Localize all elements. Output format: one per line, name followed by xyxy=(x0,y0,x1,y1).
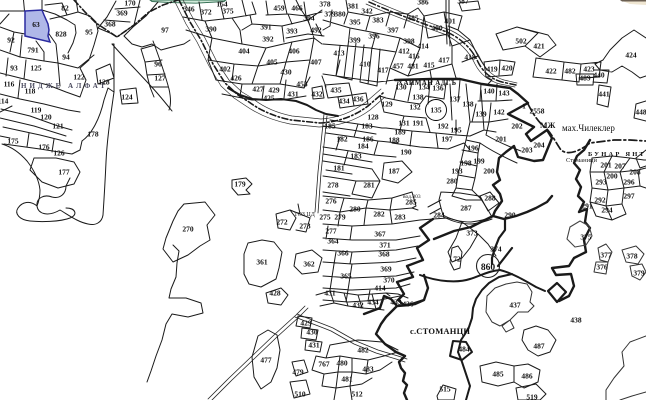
svg-text:282: 282 xyxy=(373,210,385,219)
svg-text:414: 414 xyxy=(374,284,386,293)
svg-text:432: 432 xyxy=(352,301,364,310)
svg-text:187: 187 xyxy=(388,167,400,176)
svg-text:391: 391 xyxy=(260,23,272,32)
svg-text:385: 385 xyxy=(407,14,419,23)
svg-text:200: 200 xyxy=(483,167,495,176)
svg-text:346: 346 xyxy=(183,5,195,14)
svg-text:72: 72 xyxy=(453,255,461,264)
svg-text:482: 482 xyxy=(564,67,576,76)
svg-text:397: 397 xyxy=(387,26,399,35)
svg-text:402: 402 xyxy=(219,65,231,74)
svg-text:480: 480 xyxy=(336,359,348,368)
svg-text:386: 386 xyxy=(417,0,429,7)
svg-text:183: 183 xyxy=(350,152,362,161)
svg-text:1: 1 xyxy=(522,102,526,111)
svg-text:201: 201 xyxy=(600,161,612,170)
svg-text:97: 97 xyxy=(161,26,169,35)
svg-text:143: 143 xyxy=(498,89,510,98)
svg-text:126: 126 xyxy=(53,149,65,158)
svg-text:482: 482 xyxy=(357,346,369,355)
svg-text:118: 118 xyxy=(25,87,36,96)
svg-text:292: 292 xyxy=(594,196,606,205)
svg-text:200: 200 xyxy=(606,172,618,181)
svg-text:417: 417 xyxy=(377,66,389,75)
svg-text:364: 364 xyxy=(327,237,339,246)
svg-text:393: 393 xyxy=(286,27,298,36)
svg-text:188: 188 xyxy=(388,136,400,145)
svg-text:436: 436 xyxy=(402,300,414,309)
svg-text:492: 492 xyxy=(310,26,322,35)
svg-text:466: 466 xyxy=(291,4,303,13)
svg-text:181: 181 xyxy=(333,164,345,173)
svg-text:433: 433 xyxy=(390,298,402,307)
svg-text:422: 422 xyxy=(545,67,557,76)
svg-text:132: 132 xyxy=(409,103,421,112)
svg-text:404: 404 xyxy=(238,47,250,56)
svg-text:416: 416 xyxy=(408,52,420,61)
svg-text:мах.Чилеклер: мах.Чилеклер xyxy=(562,123,615,133)
svg-text:441: 441 xyxy=(598,90,610,99)
svg-text:374: 374 xyxy=(490,245,502,254)
svg-text:63: 63 xyxy=(32,20,40,29)
svg-text:270: 270 xyxy=(182,225,194,234)
svg-text:401: 401 xyxy=(444,17,456,26)
svg-text:430: 430 xyxy=(306,328,318,337)
svg-text:177: 177 xyxy=(58,168,70,177)
svg-text:515: 515 xyxy=(439,385,451,394)
svg-text:435: 435 xyxy=(330,86,342,95)
svg-text:512: 512 xyxy=(351,390,363,399)
svg-text:457: 457 xyxy=(392,62,404,71)
svg-text:484: 484 xyxy=(458,345,470,354)
svg-text:440: 440 xyxy=(593,71,605,80)
svg-text:128: 128 xyxy=(98,78,110,87)
svg-text:276: 276 xyxy=(325,197,337,206)
svg-text:204: 204 xyxy=(533,141,545,150)
svg-text:272: 272 xyxy=(276,218,288,227)
svg-text:130: 130 xyxy=(395,83,407,92)
svg-text:437: 437 xyxy=(509,301,521,310)
svg-text:195: 195 xyxy=(450,126,462,135)
svg-text:372: 372 xyxy=(200,8,212,17)
svg-text:92: 92 xyxy=(7,36,15,45)
svg-text:273: 273 xyxy=(299,222,311,231)
svg-text:154: 154 xyxy=(216,0,228,9)
svg-text:176: 176 xyxy=(38,143,50,152)
svg-text:400: 400 xyxy=(431,24,443,33)
svg-text:373: 373 xyxy=(466,229,478,238)
svg-text:179: 179 xyxy=(234,180,246,189)
svg-text:170: 170 xyxy=(124,0,136,8)
svg-text:430: 430 xyxy=(280,68,292,77)
svg-text:Стоманици: Стоманици xyxy=(566,157,598,164)
svg-text:127: 127 xyxy=(154,74,166,83)
svg-text:121: 121 xyxy=(52,122,64,131)
svg-text:418: 418 xyxy=(464,53,476,62)
svg-text:419: 419 xyxy=(486,65,498,74)
svg-text:93: 93 xyxy=(10,64,18,73)
svg-text:477: 477 xyxy=(260,356,272,365)
svg-text:371: 371 xyxy=(379,241,391,250)
svg-text:369: 369 xyxy=(380,265,392,274)
svg-text:283: 283 xyxy=(394,213,406,222)
svg-text:376: 376 xyxy=(596,263,608,272)
svg-text:342: 342 xyxy=(361,7,373,16)
svg-text:428: 428 xyxy=(269,289,281,298)
svg-text:434: 434 xyxy=(338,97,350,106)
svg-text:с.СТОМАНЦИ: с.СТОМАНЦИ xyxy=(410,326,470,336)
svg-text:432: 432 xyxy=(311,90,323,99)
svg-text:185: 185 xyxy=(324,122,336,131)
svg-text:459: 459 xyxy=(273,4,285,13)
svg-text:368: 368 xyxy=(378,250,390,259)
svg-text:362: 362 xyxy=(303,260,315,269)
svg-text:131: 131 xyxy=(398,119,410,128)
svg-text:399: 399 xyxy=(349,36,361,45)
svg-text:291: 291 xyxy=(581,202,593,211)
svg-text:281: 281 xyxy=(363,181,375,190)
svg-text:390: 390 xyxy=(205,25,217,34)
svg-text:429: 429 xyxy=(300,319,312,328)
svg-text:197: 197 xyxy=(441,135,453,144)
svg-text:183: 183 xyxy=(361,122,373,131)
svg-text:502: 502 xyxy=(515,37,527,46)
svg-text:296: 296 xyxy=(623,178,635,187)
svg-text:125: 125 xyxy=(30,64,42,73)
svg-text:140: 140 xyxy=(483,87,495,96)
svg-text:277: 277 xyxy=(325,227,337,236)
svg-text:182: 182 xyxy=(336,135,348,144)
svg-text:519: 519 xyxy=(526,393,538,401)
svg-text:394: 394 xyxy=(303,14,315,23)
svg-text:481: 481 xyxy=(407,62,419,71)
svg-text:424: 424 xyxy=(625,51,637,60)
svg-text:275: 275 xyxy=(319,213,331,222)
svg-text:431: 431 xyxy=(324,289,336,298)
svg-text:138: 138 xyxy=(462,100,474,109)
svg-text:448: 448 xyxy=(635,108,646,117)
svg-text:410: 410 xyxy=(359,60,371,69)
svg-text:438: 438 xyxy=(570,316,582,325)
svg-text:396: 396 xyxy=(368,32,380,41)
svg-text:415: 415 xyxy=(423,61,435,70)
svg-text:288: 288 xyxy=(484,194,496,203)
svg-text:487: 487 xyxy=(533,342,545,351)
svg-text:485: 485 xyxy=(492,370,504,379)
svg-text:479: 479 xyxy=(292,368,304,377)
svg-text:379: 379 xyxy=(633,269,645,278)
svg-text:425: 425 xyxy=(263,94,275,103)
svg-text:426: 426 xyxy=(230,74,242,83)
svg-text:378: 378 xyxy=(626,252,638,261)
svg-text:120: 120 xyxy=(40,113,52,122)
svg-text:201: 201 xyxy=(495,135,507,144)
svg-text:293: 293 xyxy=(595,178,607,187)
svg-text:193: 193 xyxy=(451,167,463,176)
svg-text:122: 122 xyxy=(73,73,85,82)
svg-text:138: 138 xyxy=(412,93,424,102)
svg-text:381: 381 xyxy=(347,2,359,11)
svg-text:434: 434 xyxy=(367,298,379,307)
svg-text:421: 421 xyxy=(533,42,545,51)
svg-text:486: 486 xyxy=(521,372,533,381)
svg-text:489: 489 xyxy=(579,74,591,83)
svg-text:407: 407 xyxy=(310,58,322,67)
svg-text:380: 380 xyxy=(334,10,346,19)
svg-text:ТОЗ ЦД: ТОЗ ЦД xyxy=(294,212,315,218)
svg-text:297: 297 xyxy=(623,192,635,201)
svg-text:128: 128 xyxy=(367,113,379,122)
svg-text:142: 142 xyxy=(493,108,505,117)
svg-text:116: 116 xyxy=(4,80,15,89)
svg-text:427: 427 xyxy=(252,85,264,94)
svg-text:420: 420 xyxy=(501,64,513,73)
svg-text:367: 367 xyxy=(374,230,386,239)
svg-text:377: 377 xyxy=(600,251,612,260)
svg-text:387: 387 xyxy=(457,0,469,6)
svg-text:791: 791 xyxy=(27,46,39,55)
svg-text:378: 378 xyxy=(319,0,331,9)
svg-text:196: 196 xyxy=(467,144,479,153)
svg-text:82: 82 xyxy=(61,4,69,13)
svg-text:481: 481 xyxy=(341,375,353,384)
svg-text:136: 136 xyxy=(432,84,444,93)
svg-text:124: 124 xyxy=(121,93,133,102)
svg-text:383: 383 xyxy=(372,16,384,25)
svg-text:МЖ: МЖ xyxy=(540,121,556,130)
svg-text:366: 366 xyxy=(337,249,349,258)
svg-text:96: 96 xyxy=(154,60,162,69)
svg-text:192: 192 xyxy=(437,122,449,131)
svg-text:406: 406 xyxy=(288,47,300,56)
svg-text:431: 431 xyxy=(308,341,320,350)
svg-text:279: 279 xyxy=(334,213,346,222)
svg-text:510: 510 xyxy=(294,390,306,399)
svg-text:365: 365 xyxy=(340,272,352,281)
svg-text:191: 191 xyxy=(412,119,424,128)
svg-text:395: 395 xyxy=(349,18,361,27)
svg-text:285: 285 xyxy=(405,198,417,207)
svg-text:414: 414 xyxy=(417,42,429,51)
svg-text:294: 294 xyxy=(601,206,613,215)
svg-text:284: 284 xyxy=(433,211,445,220)
svg-text:137: 137 xyxy=(449,95,461,104)
svg-text:405: 405 xyxy=(266,58,278,67)
svg-text:361: 361 xyxy=(256,258,268,267)
svg-text:178: 178 xyxy=(87,130,99,139)
svg-text:94: 94 xyxy=(62,53,70,62)
svg-text:860: 860 xyxy=(481,263,496,273)
svg-text:436: 436 xyxy=(352,95,364,104)
svg-text:767: 767 xyxy=(318,360,330,369)
svg-text:135: 135 xyxy=(430,106,442,115)
svg-text:287: 287 xyxy=(460,204,472,213)
svg-text:280: 280 xyxy=(446,177,458,186)
svg-text:129: 129 xyxy=(381,100,393,109)
svg-text:134: 134 xyxy=(418,83,430,92)
svg-text:413: 413 xyxy=(333,49,345,58)
svg-text:202: 202 xyxy=(511,122,523,131)
svg-text:398: 398 xyxy=(403,37,415,46)
svg-text:828: 828 xyxy=(55,30,67,39)
svg-text:208: 208 xyxy=(629,168,641,177)
svg-text:199: 199 xyxy=(473,157,485,166)
svg-text:175: 175 xyxy=(7,137,19,146)
svg-text:369: 369 xyxy=(116,9,128,18)
svg-text:184: 184 xyxy=(357,142,369,151)
svg-text:114: 114 xyxy=(0,97,9,106)
svg-text:368: 368 xyxy=(104,20,116,29)
svg-text:375: 375 xyxy=(580,233,592,242)
svg-text:392: 392 xyxy=(262,35,274,44)
svg-text:431: 431 xyxy=(287,90,299,99)
svg-text:190: 190 xyxy=(400,148,412,157)
svg-text:280: 280 xyxy=(349,205,361,214)
svg-text:290: 290 xyxy=(504,211,516,220)
svg-text:417: 417 xyxy=(438,56,450,65)
svg-text:2558: 2558 xyxy=(530,107,545,116)
svg-text:278: 278 xyxy=(327,181,339,190)
svg-text:139: 139 xyxy=(475,110,487,119)
svg-text:207: 207 xyxy=(614,162,626,171)
svg-text:453: 453 xyxy=(296,80,308,89)
svg-text:95: 95 xyxy=(85,28,93,37)
svg-text:203: 203 xyxy=(521,146,533,155)
svg-text:483: 483 xyxy=(362,365,374,374)
